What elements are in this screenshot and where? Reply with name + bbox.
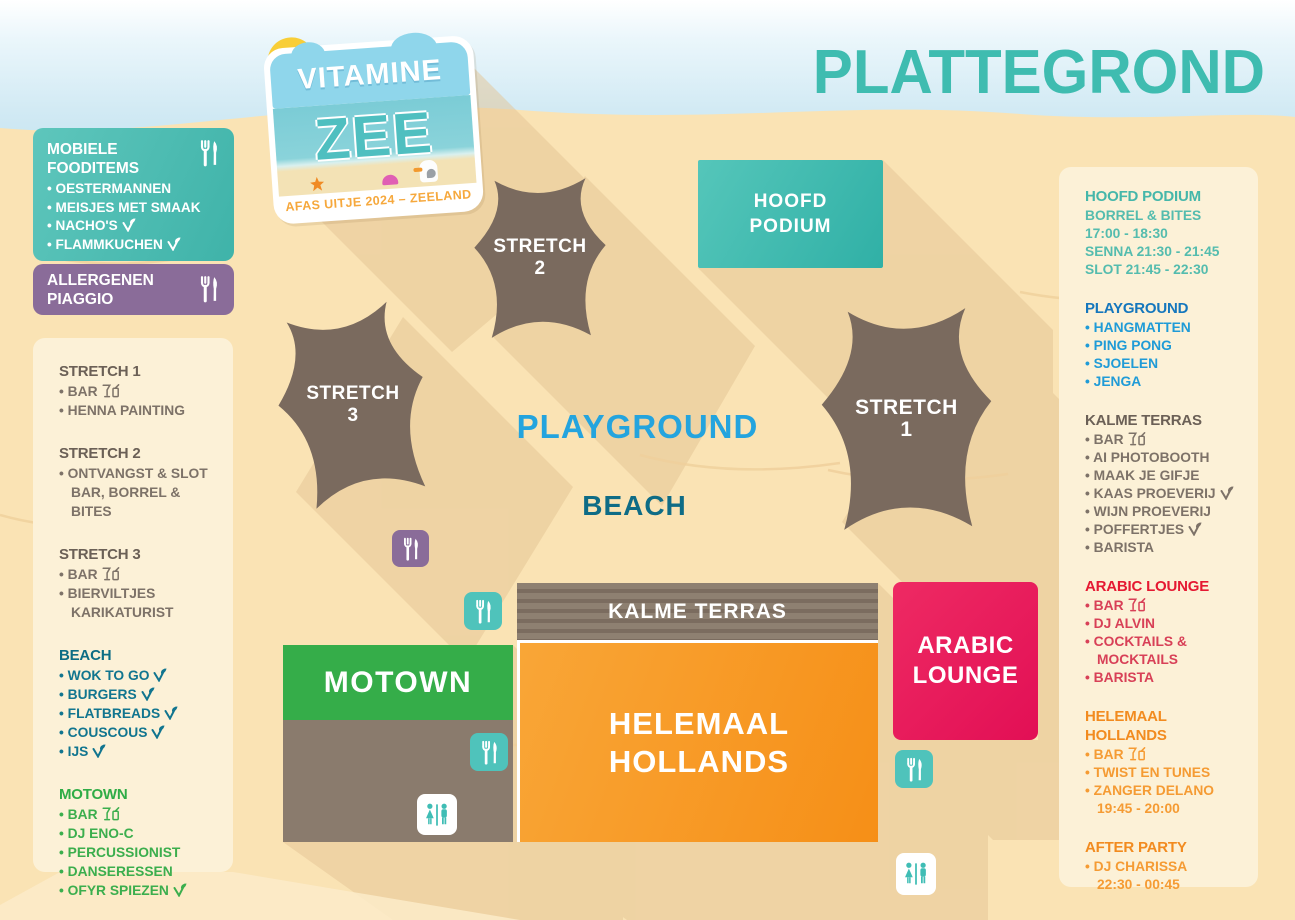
list-item: BAR [1085,431,1244,449]
drinks-icon [1128,598,1146,612]
stage-label: HOOFD [754,189,828,214]
section-title: STRETCH 2 [59,444,219,463]
restroom-icon [896,853,936,895]
panel-section-hoofd-podium: HOOFD PODIUM BORREL & BITES17:00 - 18:30… [1085,187,1244,279]
section-title: BEACH [59,646,219,665]
program-line: SENNA 21:30 - 21:45 [1085,243,1244,261]
left-info-panel: STRETCH 1 BAR HENNA PAINTING STRETCH 2 O… [33,338,233,872]
drinks-icon [102,384,120,398]
list-item: NACHO'S [47,217,222,236]
mobile-fooditems-title: MOBIELE FOODITEMS [47,140,177,178]
drinks-icon [102,807,120,821]
seagull-icon [419,160,438,183]
drinks-icon [102,567,120,581]
list-item: IJS [59,742,219,761]
list-item: BAR [1085,597,1244,615]
section-title: ARABIC LOUNGE [1085,577,1244,596]
map-beach-label: BEACH [552,490,717,522]
list-item: BIERVILTJESKARIKATURIST [59,584,219,622]
list-item: COCKTAILS &MOCKTAILS [1085,633,1244,669]
drinks-icon [1128,747,1146,761]
list-item: BAR [59,805,219,824]
list-item: DJ CHARISSA22:30 - 00:45 [1085,858,1244,894]
panel-section-playground: PLAYGROUND HANGMATTENPING PONGSJOELENJEN… [1085,299,1244,391]
list-item: AI PHOTOBOOTH [1085,449,1244,467]
list-item: HENNA PAINTING [59,401,219,420]
list-item: WOK TO GO [59,666,219,685]
shell-icon [382,174,399,185]
food-stand-icon [470,733,508,771]
fork-knife-icon [194,274,224,304]
panel-section-stretch-2: STRETCH 2 ONTVANGST & SLOTBAR, BORREL & … [59,444,219,521]
list-item: HANGMATTEN [1085,319,1244,337]
panel-section-stretch-1: STRETCH 1 BAR HENNA PAINTING [59,362,219,420]
list-item: BAR [59,382,219,401]
program-line: 17:00 - 18:30 [1085,225,1244,243]
panel-section-helemaal-hollands: HELEMAAL HOLLANDS BAR TWIST EN TUNES ZAN… [1085,707,1244,818]
section-title: STRETCH 1 [59,362,219,381]
map-playground-label: PLAYGROUND [505,408,770,446]
list-item: POFFERTJES [1085,521,1244,539]
map-motown-stage: MOTOWN [283,645,513,720]
list-item: JENGA [1085,373,1244,391]
program-line: BORREL & BITES [1085,207,1244,225]
page-title: PLATTEGROND [735,36,1265,108]
restroom-icon [417,794,457,835]
vegetarian-leaf-icon [1220,486,1234,500]
map-hoofd-podium-stage: HOOFD PODIUM [698,160,883,268]
mobile-fooditems-list: OESTERMANNEN MEISJES MET SMAAK NACHO'S F… [47,180,222,254]
list-item: WIJN PROEVERIJ [1085,503,1244,521]
logo-card: VITAMINE ZEE AFAS UITJE 2024 – ZEELAND [263,35,485,225]
vegetarian-leaf-icon [173,883,187,897]
list-item: DJ ALVIN [1085,615,1244,633]
list-item: BAR [1085,746,1244,764]
list-item: OESTERMANNEN [47,180,222,199]
list-item: BARISTA [1085,669,1244,687]
vegetarian-leaf-icon [92,744,106,758]
list-item: ZANGER DELANO19:45 - 20:00 [1085,782,1244,818]
map-helemaal-hollands-stage: HELEMAAL HOLLANDS [517,643,878,842]
section-title: STRETCH 3 [59,545,219,564]
list-item: BARISTA [1085,539,1244,557]
section-title: MOTOWN [59,785,219,804]
stage-label: PODIUM [750,214,832,239]
list-item: OFYR SPIEZEN [59,881,219,900]
drinks-icon [1128,432,1146,446]
panel-section-motown: MOTOWN BAR DJ ENO-C PERCUSSIONIST DANSER… [59,785,219,900]
panel-section-stretch-3: STRETCH 3 BAR BIERVILTJESKARIKATURIST [59,545,219,622]
map-arabic-lounge-stage: ARABIC LOUNGE [893,582,1038,740]
food-stand-icon [895,750,933,788]
list-item: PERCUSSIONIST [59,843,219,862]
program-line: SLOT 21:45 - 22:30 [1085,261,1244,279]
allergen-piaggio-box: ALLERGENEN PIAGGIO [33,264,234,315]
panel-section-arabic-lounge: ARABIC LOUNGE BAR DJ ALVIN COCKTAILS &MO… [1085,577,1244,687]
list-item: DJ ENO-C [59,824,219,843]
list-item: SJOELEN [1085,355,1244,373]
event-logo: VITAMINE ZEE AFAS UITJE 2024 – ZEELAND [252,18,491,225]
vegetarian-leaf-icon [141,687,155,701]
section-title: AFTER PARTY [1085,838,1244,857]
map-stretch-tent-1: STRETCH1 [820,301,993,537]
list-item: FLATBREADS [59,704,219,723]
list-item: ONTVANGST & SLOTBAR, BORREL & BITES [59,464,219,521]
vegetarian-leaf-icon [1188,522,1202,536]
list-item: DANSERESSEN [59,862,219,881]
section-title: HELEMAAL HOLLANDS [1085,707,1244,745]
vegetarian-leaf-icon [122,218,136,232]
mobile-fooditems-box: MOBIELE FOODITEMS OESTERMANNEN MEISJES M… [33,128,234,261]
list-item: MEISJES MET SMAAK [47,199,222,218]
logo-title-main: ZEE [273,97,475,177]
plattegrond-poster: PLATTEGROND VITAMINE ZEE AFAS UITJE 2024… [0,0,1295,920]
vegetarian-leaf-icon [151,725,165,739]
food-stand-icon [464,592,502,630]
panel-section-after-party: AFTER PARTY DJ CHARISSA22:30 - 00:45 [1085,838,1244,894]
list-item: COUSCOUS [59,723,219,742]
panel-section-kalme-terras: KALME TERRAS BAR AI PHOTOBOOTH MAAK JE G… [1085,411,1244,557]
list-item: PING PONG [1085,337,1244,355]
list-item: KAAS PROEVERIJ [1085,485,1244,503]
map-kalme-terras-roof: KALME TERRAS [517,583,878,643]
logo-sea-band: ZEE [273,95,477,197]
list-item: TWIST EN TUNES [1085,764,1244,782]
starfish-icon [310,176,325,191]
list-item: BAR [59,565,219,584]
section-title: HOOFD PODIUM [1085,187,1244,206]
list-item: MAAK JE GIFJE [1085,467,1244,485]
section-title: KALME TERRAS [1085,411,1244,430]
panel-section-beach: BEACH WOK TO GO BURGERS FLATBREADS COUSC… [59,646,219,761]
logo-title-top: VITAMINE [297,53,443,96]
allergen-piaggio-title: ALLERGENEN PIAGGIO [47,271,177,309]
vegetarian-leaf-icon [153,668,167,682]
right-program-panel: HOOFD PODIUM BORREL & BITES17:00 - 18:30… [1059,167,1258,887]
list-item: BURGERS [59,685,219,704]
vegetarian-leaf-icon [167,237,181,251]
map-stretch-tent-2: STRETCH2 [473,173,607,343]
list-item: FLAMMKUCHEN [47,236,222,255]
food-stand-icon [392,530,429,567]
section-title: PLAYGROUND [1085,299,1244,318]
map-stretch-tent-3: STRETCH3 [261,292,444,519]
fork-knife-icon [194,138,224,168]
vegetarian-leaf-icon [164,706,178,720]
